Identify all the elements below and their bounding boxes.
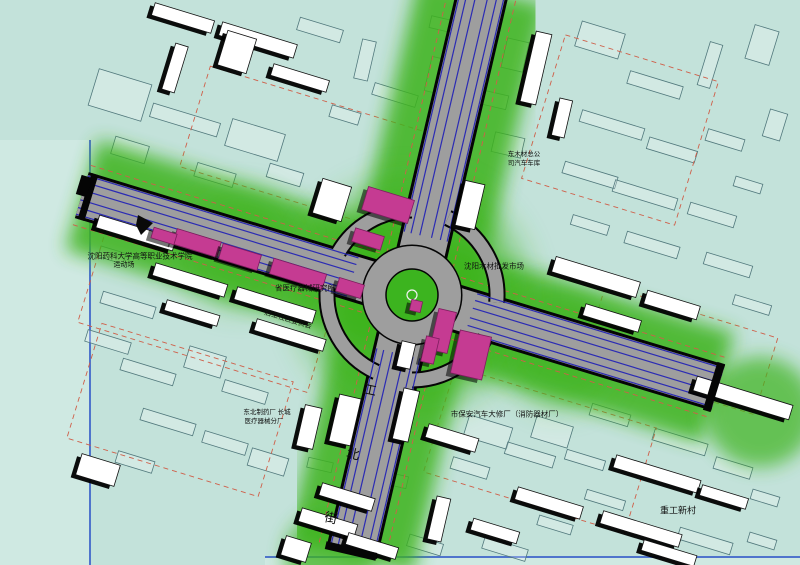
label-repair-factory: 市保安汽车大修厂（消防器材厂） bbox=[451, 410, 564, 418]
label-sports-field: 运动场 bbox=[114, 262, 135, 269]
label-zhonggong-village: 重工新村 bbox=[660, 507, 696, 516]
label-medical-institute: 省医疗器械研究所 bbox=[275, 284, 335, 292]
label-street-char-2: 北 bbox=[345, 446, 360, 461]
label-pharma-factory-line2: 医疗器械分厂 bbox=[245, 419, 284, 426]
label-street-char-3: 街 bbox=[323, 510, 338, 525]
label-pharm-college: 沈阳药科大学高等职业技术学院 bbox=[88, 252, 193, 260]
label-street-char-1: 工 bbox=[362, 382, 377, 397]
map-canvas: 沈阳药科大学高等职业技术学院 运动场 省医疗器械研究所 沈阳木材批发市场 启工社… bbox=[0, 0, 800, 565]
label-timber-garage-line2: 司汽车车库 bbox=[508, 161, 541, 168]
map-graphics bbox=[0, 0, 800, 565]
label-wood-market: 沈阳木材批发市场 bbox=[464, 262, 524, 270]
label-timber-garage-line1: 东木材总公 bbox=[508, 152, 541, 159]
label-pharma-factory-line1: 东北制药厂 长城 bbox=[243, 410, 290, 417]
